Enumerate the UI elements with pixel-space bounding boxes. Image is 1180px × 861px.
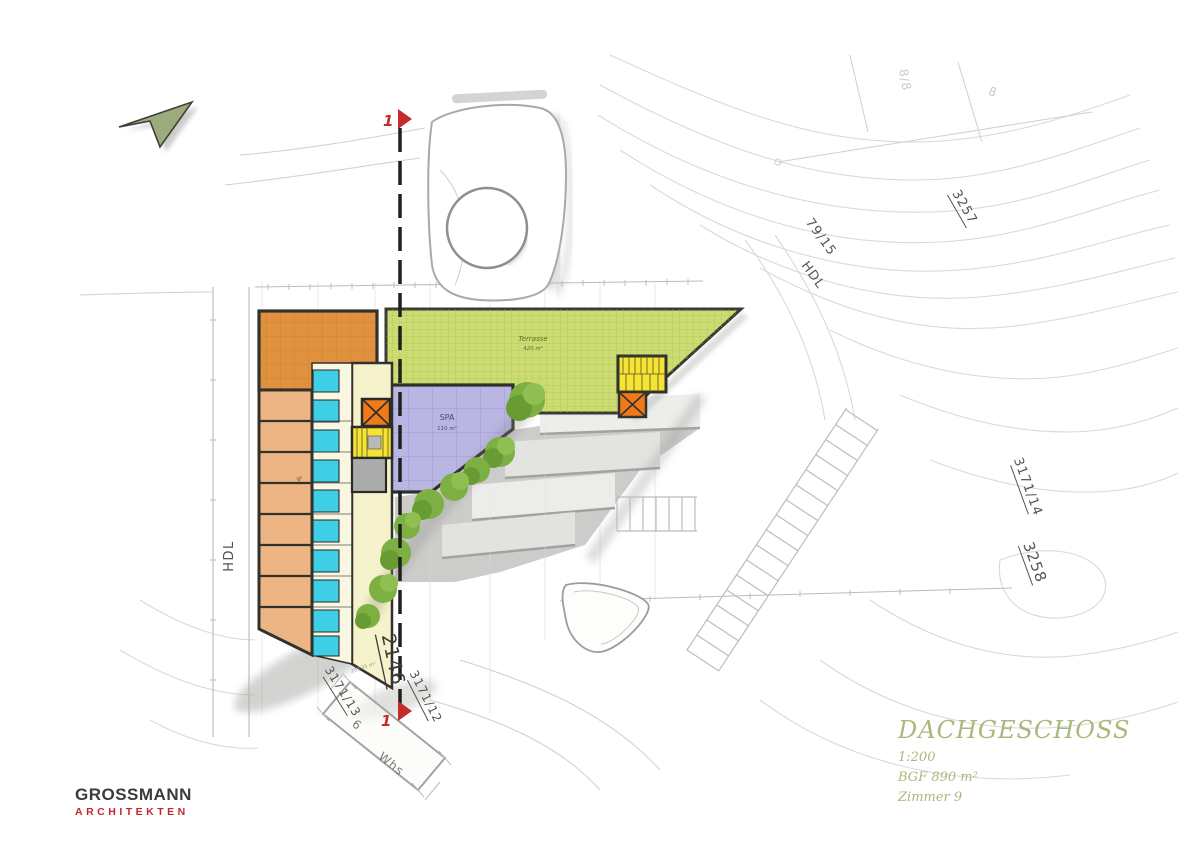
pond-outline <box>563 583 649 652</box>
sheet-rooms: Zimmer 9 <box>898 788 1130 808</box>
parcel-3257: 3257 <box>949 187 981 227</box>
terrace-label: Terrasse <box>518 335 547 343</box>
section-arrow-top <box>398 109 412 129</box>
section-marker-top: 1 <box>383 112 393 130</box>
sheet-scale: 1:200 <box>898 748 1130 768</box>
building-roof-plan: 4 <box>259 311 392 688</box>
parcel-79-15: 79/15 <box>802 216 839 259</box>
floor-plan-sheet: Terrasse 420 m² SPA 110 m² 4 <box>0 0 1180 861</box>
sheet-title: DACHGESCHOSS <box>898 716 1130 744</box>
sheet-area: BGF 890 m² <box>898 768 1130 788</box>
road-left <box>210 287 249 737</box>
terrace-area-label: 420 m² <box>523 345 544 352</box>
spa-label: SPA <box>440 413 455 422</box>
logo-subtitle: ARCHITEKTEN <box>75 806 192 818</box>
road-upper-label: HDL <box>798 259 828 292</box>
existing-building-outline <box>428 90 571 301</box>
architect-logo: GROSSMANN ARCHITEKTEN <box>75 785 192 818</box>
utility-room <box>352 458 386 492</box>
road-left-label: HDL <box>222 540 237 572</box>
section-marker-bottom: 1 <box>381 712 391 730</box>
parcel-3171-14: 3171/14 <box>1010 456 1045 518</box>
parking-strip-right <box>687 408 878 671</box>
house-8-8-label: 8/8 <box>896 68 914 92</box>
logo-name: GROSSMANN <box>75 785 192 805</box>
title-block: DACHGESCHOSS 1:200 BGF 890 m² Zimmer 9 <box>898 716 1130 808</box>
guest-rooms <box>259 390 312 655</box>
round-structure <box>447 188 527 268</box>
house-8-label: 8 <box>987 84 1000 100</box>
north-arrow <box>119 102 198 152</box>
spa-area-label: 110 m² <box>437 425 457 432</box>
